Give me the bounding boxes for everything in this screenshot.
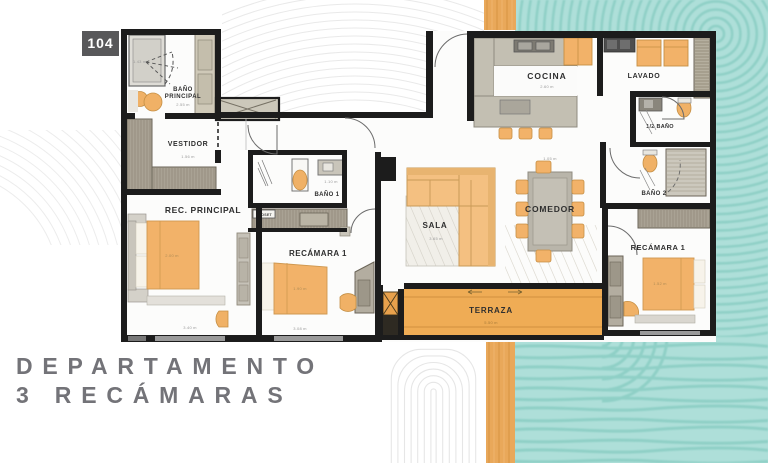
svg-text:SALA: SALA xyxy=(423,221,448,230)
svg-text:1.43 m: 1.43 m xyxy=(133,59,147,64)
svg-text:2.60 m: 2.60 m xyxy=(540,84,554,89)
svg-text:2.00 m: 2.00 m xyxy=(165,253,179,258)
svg-text:RECÁMARA 1: RECÁMARA 1 xyxy=(289,249,347,258)
svg-text:PRINCIPAL: PRINCIPAL xyxy=(165,94,201,100)
svg-text:3.08 m: 3.08 m xyxy=(293,326,307,331)
svg-text:REC. PRINCIPAL: REC. PRINCIPAL xyxy=(165,205,241,215)
svg-text:LAVADO: LAVADO xyxy=(628,73,661,80)
svg-text:COMEDOR: COMEDOR xyxy=(525,204,575,214)
svg-text:2.55 m: 2.55 m xyxy=(176,102,190,107)
svg-text:1/2 BAÑO: 1/2 BAÑO xyxy=(646,123,674,130)
svg-text:1.56 m: 1.56 m xyxy=(181,154,195,159)
svg-text:VESTIDOR: VESTIDOR xyxy=(168,141,209,148)
svg-text:5.50 m: 5.50 m xyxy=(484,320,498,325)
svg-text:BAÑO 1: BAÑO 1 xyxy=(314,191,339,198)
svg-text:BAÑO: BAÑO xyxy=(173,86,193,93)
svg-text:TERRAZA: TERRAZA xyxy=(469,306,513,315)
svg-text:COCINA: COCINA xyxy=(527,71,567,81)
svg-text:1.90 m: 1.90 m xyxy=(293,286,307,291)
svg-text:RECÁMARA 1: RECÁMARA 1 xyxy=(631,243,686,252)
svg-text:1.05 m: 1.05 m xyxy=(543,156,557,161)
svg-text:BAÑO 2: BAÑO 2 xyxy=(641,190,666,197)
svg-text:1.10 m: 1.10 m xyxy=(324,179,338,184)
svg-text:1.52 m: 1.52 m xyxy=(653,281,667,286)
svg-text:3.65 m: 3.65 m xyxy=(429,236,443,241)
svg-text:3.40 m: 3.40 m xyxy=(183,325,197,330)
